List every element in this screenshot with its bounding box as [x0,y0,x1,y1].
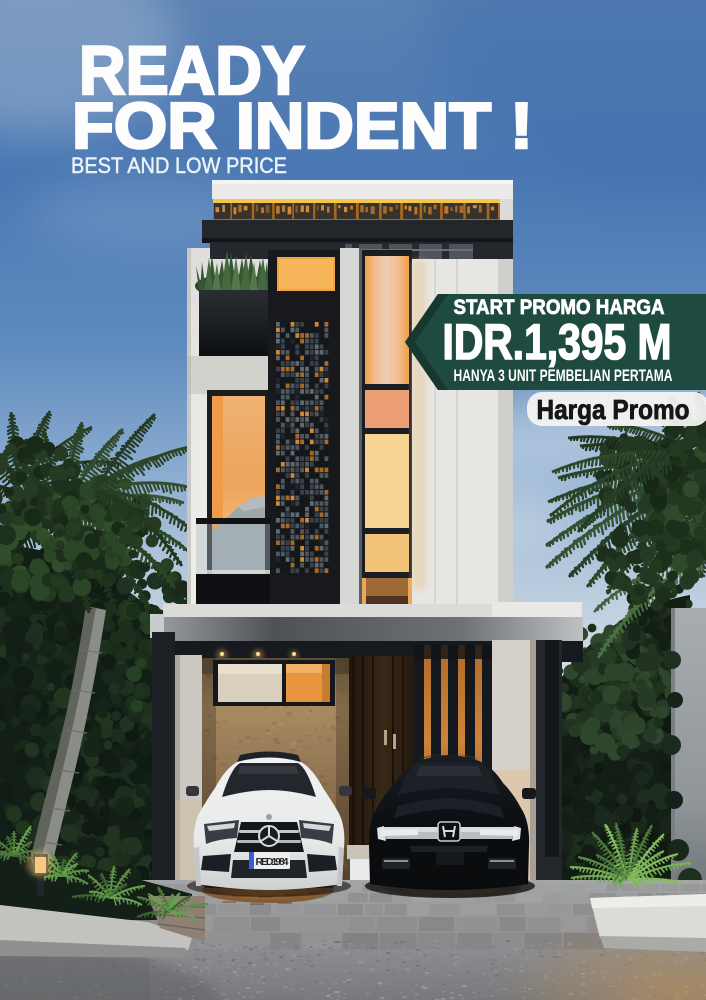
svg-text:BEST AND LOW PRICE: BEST AND LOW PRICE [71,153,287,178]
svg-text:FOR INDENT !: FOR INDENT ! [72,89,533,162]
svg-text:Harga Promo: Harga Promo [537,394,690,425]
svg-text:HANYA 3 UNIT PEMBELIAN PERTAMA: HANYA 3 UNIT PEMBELIAN PERTAMA [454,367,673,385]
svg-text:RED1984: RED1984 [256,856,289,868]
svg-text:IDR.1,395 M: IDR.1,395 M [443,314,672,370]
